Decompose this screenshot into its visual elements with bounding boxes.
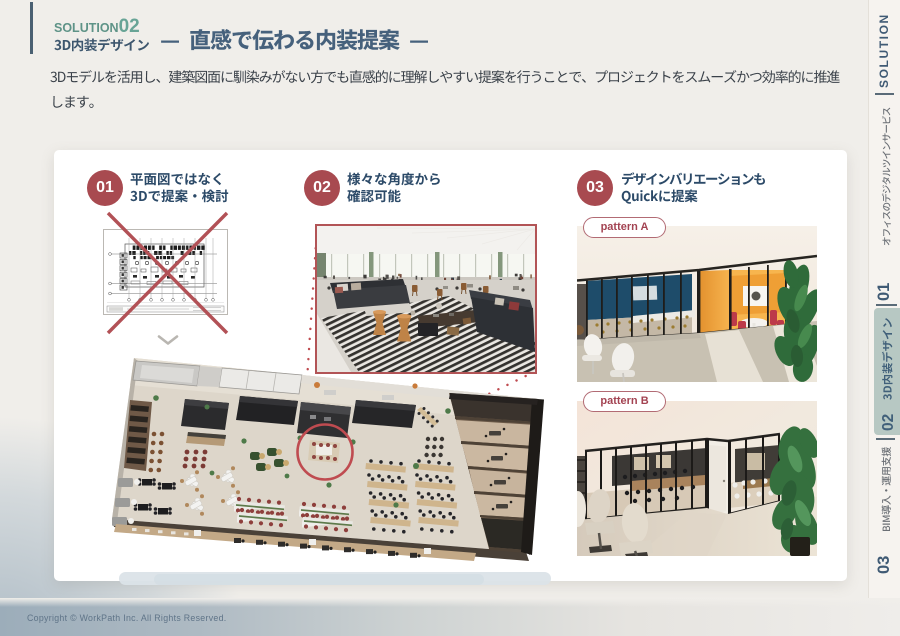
svg-text:02: 02 [880,414,897,431]
